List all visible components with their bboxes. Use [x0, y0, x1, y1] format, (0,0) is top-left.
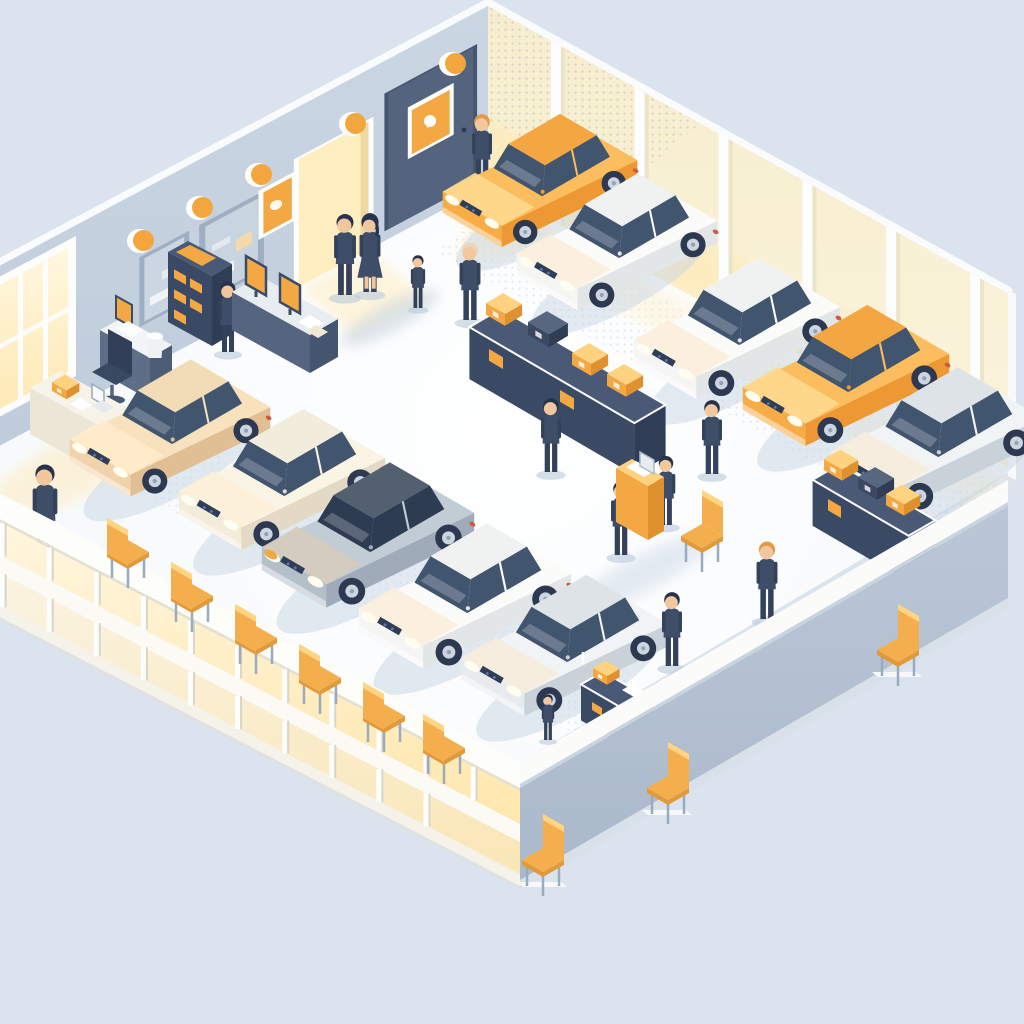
door-handle [462, 128, 467, 133]
scene-canvas [0, 0, 1024, 1024]
skirt [357, 260, 382, 278]
trash-bin [147, 332, 163, 358]
dealership-illustration [0, 0, 1024, 1024]
